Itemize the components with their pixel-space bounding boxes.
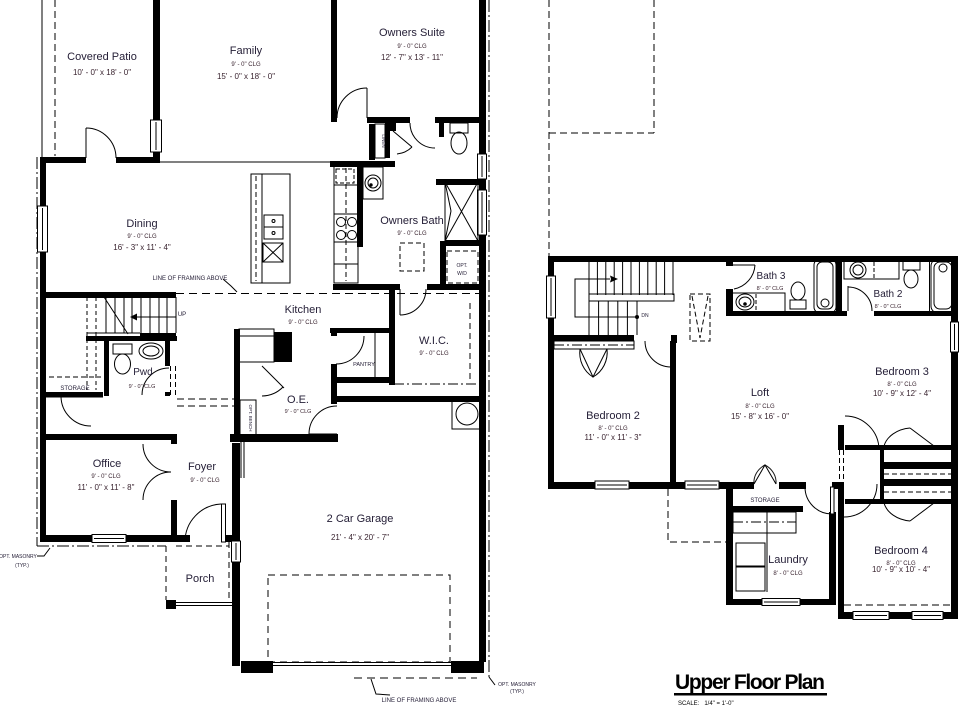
svg-text:Family: Family xyxy=(230,45,263,57)
svg-text:STORAGE: STORAGE xyxy=(60,386,89,392)
svg-text:LINE OF FRAMING ABOVE: LINE OF FRAMING ABOVE xyxy=(153,276,228,282)
svg-text:Owners Bath: Owners Bath xyxy=(380,215,444,227)
svg-text:15' - 0" x 18' - 0": 15' - 0" x 18' - 0" xyxy=(217,72,275,81)
svg-text:9' - 0" CLG: 9' - 0" CLG xyxy=(231,62,261,68)
svg-text:10' - 9" x 10' - 4": 10' - 9" x 10' - 4" xyxy=(872,565,930,574)
svg-text:8' - 0" CLG: 8' - 0" CLG xyxy=(875,304,902,310)
svg-text:Bath 3: Bath 3 xyxy=(757,271,786,282)
svg-text:Porch: Porch xyxy=(186,573,215,585)
svg-text:SCALE: 1/4" = 1'-0": SCALE: 1/4" = 1'-0" xyxy=(678,701,734,707)
svg-text:OPT. BENCH: OPT. BENCH xyxy=(248,404,253,431)
svg-text:STORAGE: STORAGE xyxy=(750,498,779,504)
svg-text:12' - 7" x 13' - 11": 12' - 7" x 13' - 11" xyxy=(381,53,443,62)
svg-text:Bath 2: Bath 2 xyxy=(874,289,903,300)
svg-text:Pwd: Pwd xyxy=(133,367,152,378)
svg-text:LINE OF FRAMING ABOVE: LINE OF FRAMING ABOVE xyxy=(382,698,457,704)
svg-text:Loft: Loft xyxy=(751,387,769,399)
svg-text:9' - 0" CLG: 9' - 0" CLG xyxy=(91,474,121,480)
svg-text:Bedroom 3: Bedroom 3 xyxy=(875,366,929,378)
svg-text:Dining: Dining xyxy=(126,218,157,230)
svg-text:Laundry: Laundry xyxy=(768,554,808,566)
svg-text:9' - 0" CLG: 9' - 0" CLG xyxy=(285,409,312,415)
svg-text:W/D: W/D xyxy=(457,271,467,277)
svg-text:Foyer: Foyer xyxy=(188,461,216,473)
svg-text:8' - 0" CLG: 8' - 0" CLG xyxy=(745,404,775,410)
svg-text:9' - 0" CLG: 9' - 0" CLG xyxy=(288,320,318,326)
svg-text:Kitchen: Kitchen xyxy=(285,304,322,316)
svg-text:OPT.: OPT. xyxy=(456,263,467,269)
svg-text:O.E.: O.E. xyxy=(287,394,309,406)
svg-text:Owners Suite: Owners Suite xyxy=(379,27,445,39)
svg-text:9' - 0" CLG: 9' - 0" CLG xyxy=(190,478,220,484)
svg-text:10' - 0" x 18' - 0": 10' - 0" x 18' - 0" xyxy=(73,68,131,77)
svg-text:(TYP.): (TYP.) xyxy=(15,563,29,569)
svg-text:W.I.C.: W.I.C. xyxy=(419,335,449,347)
svg-text:11' - 0" x 11' - 3": 11' - 0" x 11' - 3" xyxy=(585,433,642,442)
svg-text:OPT. MASONRY: OPT. MASONRY xyxy=(0,554,38,560)
svg-text:8' - 0" CLG: 8' - 0" CLG xyxy=(887,382,917,388)
svg-text:OPT. MASONRY: OPT. MASONRY xyxy=(498,682,536,688)
svg-text:11' - 0" x 11' - 8": 11' - 0" x 11' - 8" xyxy=(78,483,135,492)
svg-text:21' - 4" x 20' - 7": 21' - 4" x 20' - 7" xyxy=(331,533,389,542)
svg-text:Bedroom 2: Bedroom 2 xyxy=(586,410,640,422)
svg-text:10' - 9" x 12' - 4": 10' - 9" x 12' - 4" xyxy=(873,389,931,398)
svg-text:8' - 0" CLG: 8' - 0" CLG xyxy=(757,286,784,292)
svg-text:9' - 0" CLG: 9' - 0" CLG xyxy=(127,234,157,240)
svg-text:DN: DN xyxy=(641,313,649,319)
svg-text:9' - 0" CLG: 9' - 0" CLG xyxy=(419,351,449,357)
svg-text:8' - 0" CLG: 8' - 0" CLG xyxy=(773,571,803,577)
svg-text:2 Car Garage: 2 Car Garage xyxy=(327,513,394,525)
svg-text:9' - 0" CLG: 9' - 0" CLG xyxy=(129,384,156,390)
svg-text:LINEN: LINEN xyxy=(381,134,386,147)
svg-text:Upper Floor Plan: Upper Floor Plan xyxy=(675,671,825,694)
svg-text:Bedroom 4: Bedroom 4 xyxy=(874,545,928,557)
svg-text:(TYP.): (TYP.) xyxy=(510,689,524,695)
svg-text:15' - 8" x 16' - 0": 15' - 8" x 16' - 0" xyxy=(731,412,789,421)
svg-text:Office: Office xyxy=(93,458,122,470)
svg-text:PANTRY: PANTRY xyxy=(353,362,375,368)
svg-text:UP: UP xyxy=(178,312,186,318)
svg-text:9' - 0" CLG: 9' - 0" CLG xyxy=(397,44,427,50)
svg-text:Covered Patio: Covered Patio xyxy=(67,51,137,63)
svg-text:8' - 0" CLG: 8' - 0" CLG xyxy=(598,426,628,432)
svg-text:16' - 3" x 11' - 4": 16' - 3" x 11' - 4" xyxy=(113,243,171,252)
svg-text:9' - 0" CLG: 9' - 0" CLG xyxy=(397,231,427,237)
